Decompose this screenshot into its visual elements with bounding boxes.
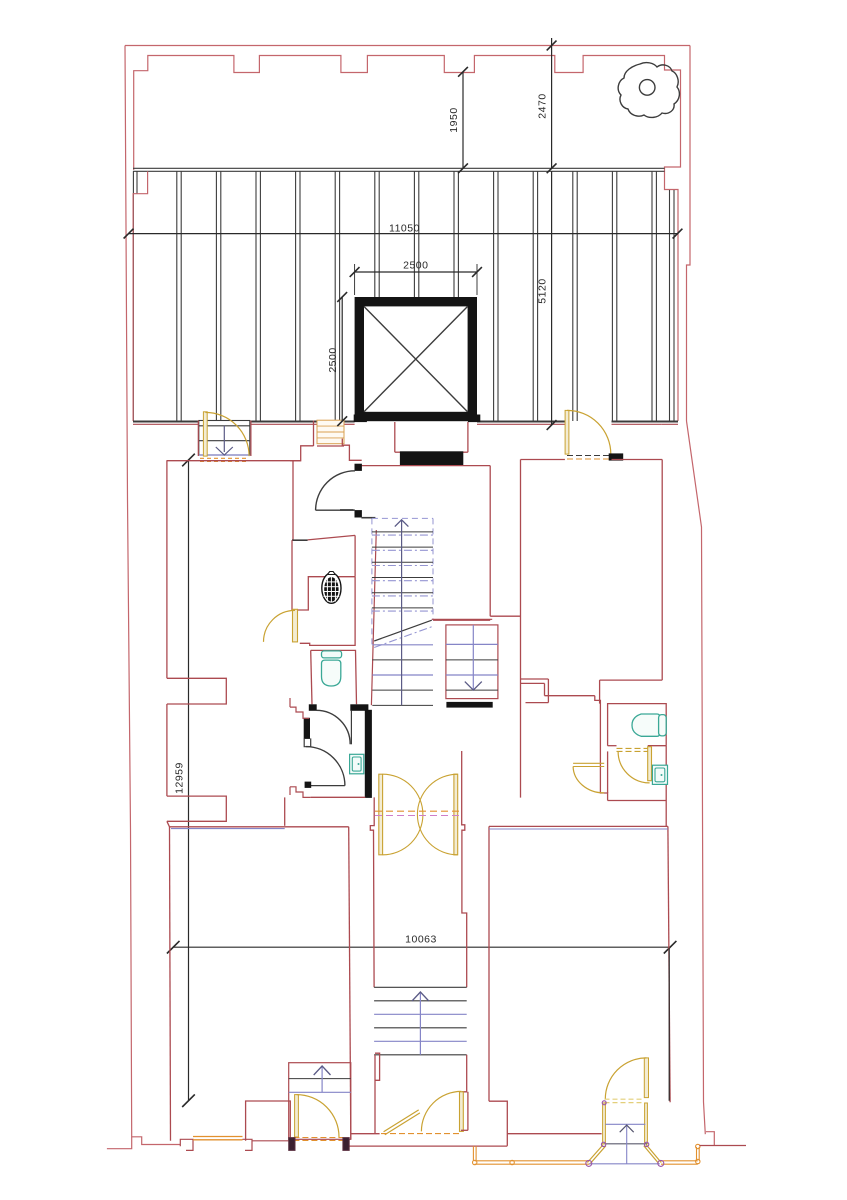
svg-text:2500: 2500 bbox=[403, 260, 428, 272]
svg-text:11050: 11050 bbox=[389, 223, 420, 235]
svg-text:2470: 2470 bbox=[537, 93, 549, 118]
svg-text:2500: 2500 bbox=[327, 347, 339, 372]
svg-text:1950: 1950 bbox=[448, 107, 460, 132]
svg-text:12959: 12959 bbox=[174, 762, 186, 794]
svg-text:5120: 5120 bbox=[537, 278, 549, 303]
svg-text:10063: 10063 bbox=[405, 934, 437, 946]
